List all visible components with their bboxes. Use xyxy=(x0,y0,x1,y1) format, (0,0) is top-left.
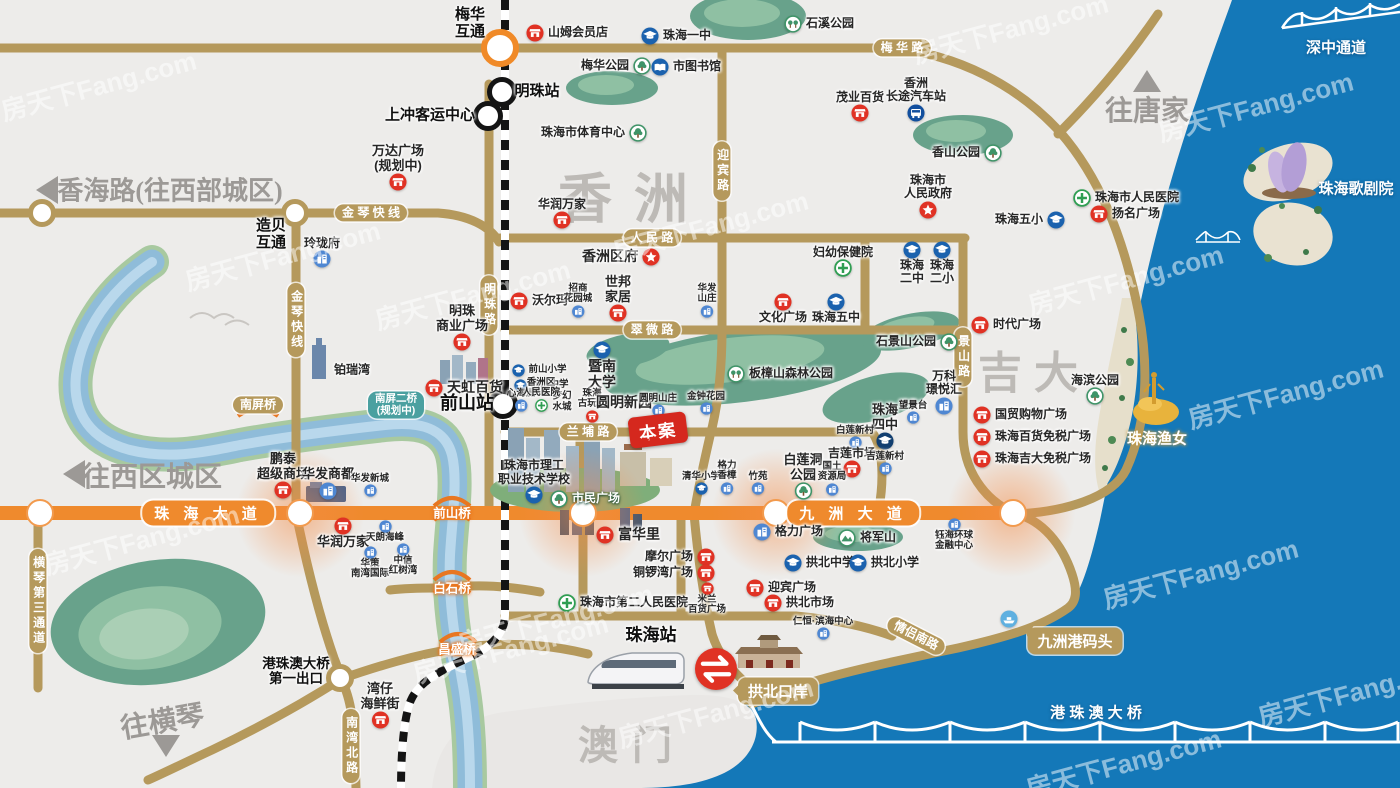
poi-label: 香洲 长途汽车站 xyxy=(886,77,946,104)
poi-label: 暨南 大学 xyxy=(588,359,616,390)
poi[interactable]: 前山小学 xyxy=(512,364,567,377)
station-label[interactable]: 珠海站 xyxy=(626,625,677,644)
park2-icon xyxy=(784,15,802,33)
poi[interactable]: 中信 红树湾 xyxy=(389,543,418,577)
poi[interactable]: 珠海五小 xyxy=(995,211,1065,229)
estate-icon xyxy=(935,397,953,415)
poi-label: 华发 山庄 xyxy=(697,284,716,305)
poi-label: 招商 花园城 xyxy=(564,284,593,305)
park-icon xyxy=(550,490,568,508)
poi[interactable]: 格力广场 xyxy=(753,523,823,541)
poi[interactable]: 格力 香樟 xyxy=(717,461,736,495)
shop-icon xyxy=(453,333,471,351)
poi[interactable]: 珠海市体育中心 xyxy=(541,124,647,142)
poi-label: 中信 红树湾 xyxy=(389,556,418,577)
poi-label: 珠海 四中 xyxy=(872,403,898,432)
poi-label: 竹苑 xyxy=(748,472,767,483)
road-label[interactable]: 南屏桥 xyxy=(233,396,283,413)
poi[interactable]: 华发新城 xyxy=(351,474,389,498)
poi-label: 市民广场 xyxy=(572,492,620,505)
poi[interactable]: 米兰 百货广场 xyxy=(688,582,726,616)
shop-icon xyxy=(510,292,528,310)
poi[interactable]: 望景台 xyxy=(899,401,928,425)
poi-label: 金钟花园 xyxy=(687,392,725,403)
poi[interactable]: 妇幼保健院 xyxy=(813,246,873,277)
poi-label: 富华里 xyxy=(618,527,660,543)
shop-icon xyxy=(609,304,627,322)
estate-icon xyxy=(700,305,713,318)
poi-label: 望景台 xyxy=(899,401,928,412)
poi[interactable]: 市图书馆 xyxy=(651,58,721,76)
planned-bridge-label: 南屏二桥 (规划中) xyxy=(368,391,424,418)
poi-label: 拱北中学 xyxy=(806,556,854,569)
poi[interactable]: 铜锣湾广场 xyxy=(633,564,715,582)
poi-label: 珠海市理工 职业技术学校 xyxy=(498,459,570,486)
sea-label: 港 珠 澳 大 桥 xyxy=(1050,702,1142,723)
poi[interactable]: 华策 南湾国际 xyxy=(351,546,389,580)
sea-label: 深中通道 xyxy=(1306,37,1366,58)
poi-label: 板樟山森林公园 xyxy=(749,367,833,380)
gold-callout[interactable]: 九洲港码头 xyxy=(1027,628,1122,655)
poi[interactable]: 华发 山庄 xyxy=(697,284,716,318)
shop-icon xyxy=(746,579,764,597)
poi-label: 拱北市场 xyxy=(786,596,834,609)
poi[interactable]: 珠海五中 xyxy=(812,293,860,324)
shop-icon xyxy=(697,564,715,582)
poi-label: 仁恒·滨海中心 xyxy=(793,617,853,628)
road-label[interactable]: 横琴第三通道 xyxy=(29,549,46,653)
poi[interactable]: 香山公园 xyxy=(932,144,1002,162)
estate-icon xyxy=(363,484,376,497)
poi[interactable]: 珠海市 人民政府 xyxy=(904,174,952,219)
poi-label: 梅华公园 xyxy=(581,59,629,72)
bridge-label: 昌盛桥 xyxy=(438,639,476,658)
poi-label: 市图书馆 xyxy=(673,60,721,73)
poi[interactable]: 市民广场 xyxy=(550,490,620,508)
poi[interactable]: 香洲区 人民医院 xyxy=(522,378,560,412)
poi[interactable]: 珠海吉大免税广场 xyxy=(973,450,1091,468)
hosp-icon xyxy=(1073,189,1091,207)
sea-label: 珠海歌剧院 xyxy=(1318,178,1393,199)
highway-label[interactable]: 珠 海 大 道 xyxy=(142,501,274,526)
shop-icon xyxy=(764,594,782,612)
poi[interactable]: 珠海百货免税广场 xyxy=(973,428,1091,446)
estate-icon xyxy=(878,462,891,475)
poi-label: 钰海环球 金融中心 xyxy=(935,531,973,552)
poi[interactable]: 万达广场 (规划中) xyxy=(372,144,424,191)
train xyxy=(588,653,684,689)
poi-label: 石景山公园 xyxy=(876,335,936,348)
poi-label: 珠海市第二人民医院 xyxy=(580,596,688,609)
poi[interactable]: 华发商都 xyxy=(302,467,354,500)
poi-label: 拱北小学 xyxy=(871,556,919,569)
borui-tower xyxy=(312,338,326,379)
estate-icon xyxy=(313,250,331,268)
poi[interactable]: 将军山 xyxy=(838,529,896,547)
poi[interactable]: 金钟花园 xyxy=(687,392,725,416)
school-icon xyxy=(694,482,707,495)
poi-label: 珠海吉大免税广场 xyxy=(995,452,1091,465)
estate-icon xyxy=(699,402,712,415)
school-icon xyxy=(1047,211,1065,229)
poi[interactable]: 招商 花园城 xyxy=(564,284,593,318)
school-icon xyxy=(641,27,659,45)
road-label[interactable]: 迎宾路 xyxy=(713,142,730,201)
poi-label: 华策 南湾国际 xyxy=(351,559,389,580)
poi[interactable]: 富华里 xyxy=(596,526,660,544)
poi-label: 万达广场 (规划中) xyxy=(372,144,424,173)
poi-label: 万科 璟悦汇 xyxy=(926,370,962,397)
estate-icon xyxy=(906,411,919,424)
estate-icon xyxy=(363,546,376,559)
direction-label: 往唐家 xyxy=(1105,89,1189,129)
poi[interactable]: 华润万家 xyxy=(538,198,586,229)
poi-label: 米兰 百货广场 xyxy=(688,595,726,616)
poi[interactable]: 文化广场 xyxy=(759,293,807,324)
station-label[interactable]: 造贝 互通 xyxy=(256,218,286,252)
estate-icon xyxy=(825,483,838,496)
poi-label: 迎宾广场 xyxy=(768,581,816,594)
poi[interactable]: 吉莲新村 xyxy=(866,452,904,476)
shop-icon xyxy=(774,293,792,311)
poi-label: 珠海市体育中心 xyxy=(541,126,625,139)
shop-icon xyxy=(1090,205,1108,223)
poi-label: 国贸购物广场 xyxy=(995,408,1067,421)
poi-label: 圆明山庄 xyxy=(639,394,677,405)
direction-arrow-icon xyxy=(1133,70,1161,92)
poi[interactable]: 石溪公园 xyxy=(784,15,854,33)
poi-label: 山姆会员店 xyxy=(548,26,608,39)
junction-circle xyxy=(26,499,54,527)
road-label[interactable]: 南湾北路 xyxy=(342,709,359,783)
poi-label: 格力 香樟 xyxy=(717,461,736,482)
poi[interactable]: 沃尔玛 xyxy=(510,292,568,310)
poi-label: 海滨公园 xyxy=(1071,374,1119,387)
shop-icon xyxy=(585,410,598,423)
poi-label: 珠海市 人民政府 xyxy=(904,174,952,201)
poi-label: 前山小学 xyxy=(529,365,567,376)
poi[interactable]: 珠海一中 xyxy=(641,27,711,45)
poi[interactable]: 拱北小学 xyxy=(849,554,919,572)
highway-label[interactable]: 九 洲 大 道 xyxy=(787,501,919,526)
poi-label: 珠海五小 xyxy=(995,213,1043,226)
park-icon xyxy=(940,333,958,351)
poi[interactable]: 香洲区府 xyxy=(582,248,660,266)
poi-label: 国土 资源局 xyxy=(818,462,847,483)
school-icon xyxy=(512,364,525,377)
station-label[interactable]: 明珠站 xyxy=(514,84,559,101)
school-icon xyxy=(784,554,802,572)
book-icon xyxy=(651,58,669,76)
poi-label: 珠海 二中 xyxy=(900,259,924,286)
estate-icon xyxy=(396,543,409,556)
shop-icon xyxy=(851,104,869,122)
poi-label: 香洲区府 xyxy=(582,249,638,265)
school-icon xyxy=(827,293,845,311)
shop-icon xyxy=(274,481,292,499)
school-icon xyxy=(593,341,611,359)
direction-arrow-icon xyxy=(63,460,85,488)
poi-label: 茂业百货 xyxy=(836,91,884,104)
junction-circle xyxy=(481,29,519,67)
poi[interactable]: 石景山公园 xyxy=(876,333,958,351)
poi[interactable]: 铂瑞湾 xyxy=(334,363,370,376)
poi-label: 妇幼保健院 xyxy=(813,246,873,259)
road-label[interactable]: 金琴快线 xyxy=(287,283,304,357)
poi-label: 沃尔玛 xyxy=(532,294,568,307)
junction-circle xyxy=(28,199,56,227)
estate-icon xyxy=(816,627,829,640)
junction-circle xyxy=(286,499,314,527)
poi[interactable]: 珠海 四中 xyxy=(872,403,898,450)
school2-icon xyxy=(876,432,894,450)
map-canvas[interactable]: 本案 房天下Fang.com房天下Fang.com房天下Fang.com房天下F… xyxy=(0,0,1400,788)
estate-icon xyxy=(319,482,337,500)
shop-icon xyxy=(371,711,389,729)
poi-label: 白莲洞 公园 xyxy=(783,453,822,482)
road-label[interactable]: 金 琴 快 线 xyxy=(335,204,407,221)
shop-icon xyxy=(553,211,571,229)
road-label[interactable]: 兰 埔 路 xyxy=(560,423,617,440)
poi-label: 香洲区 人民医院 xyxy=(522,378,560,399)
school-icon xyxy=(849,554,867,572)
poi[interactable]: 珠海 二中 xyxy=(900,241,924,286)
poi-label: 铜锣湾广场 xyxy=(633,566,693,579)
poi-label: 珠海市人民医院 xyxy=(1095,191,1179,204)
station-label[interactable]: 梅华 互通 xyxy=(455,7,485,41)
sea-label: 珠海渔女 xyxy=(1127,428,1187,449)
poi-label: 珠海百货免税广场 xyxy=(995,430,1091,443)
poi[interactable]: 海滨公园 xyxy=(1071,374,1119,405)
poi-label: 格力广场 xyxy=(775,525,823,538)
poi-label: 华发新城 xyxy=(351,474,389,485)
gov-icon xyxy=(642,248,660,266)
direction-arrow-icon xyxy=(152,735,180,757)
poi-label: 铂瑞湾 xyxy=(334,363,370,376)
gov-icon xyxy=(919,201,937,219)
shop-icon xyxy=(334,517,352,535)
direction-label: 往西区城区 xyxy=(82,455,222,495)
poi[interactable]: 板樟山森林公园 xyxy=(727,365,833,383)
poi-label: 香山公园 xyxy=(932,146,980,159)
shop-icon xyxy=(526,24,544,42)
poi-label: 珠海五中 xyxy=(812,311,860,324)
poi[interactable]: 湾仔 海鲜街 xyxy=(360,682,399,729)
poi-label: 文化广场 xyxy=(759,311,807,324)
poi[interactable]: 暨南 大学 xyxy=(588,341,616,390)
poi-label: 吉莲新村 xyxy=(866,452,904,463)
poi-label: 世邦 家居 xyxy=(605,275,631,304)
shop-icon xyxy=(389,173,407,191)
poi-label: 珠海一中 xyxy=(663,29,711,42)
estate-icon xyxy=(947,518,960,531)
poi[interactable]: 玲珑府 xyxy=(304,237,340,268)
bridge-label: 白石桥 xyxy=(433,578,471,597)
poi-label: 华发商都 xyxy=(302,467,354,482)
shop-icon xyxy=(596,526,614,544)
poi[interactable]: 珠海市第二人民医院 xyxy=(558,594,688,612)
poi[interactable]: 梅华公园 xyxy=(581,57,651,75)
road-label[interactable]: 梅 华 路 xyxy=(874,39,931,56)
border-crossing-icon[interactable] xyxy=(695,648,737,690)
park-icon xyxy=(629,124,647,142)
station-label[interactable]: 前山站 xyxy=(440,393,494,413)
poi[interactable]: 珠海 二小 xyxy=(930,241,954,286)
station-label[interactable]: 港珠澳大桥 第一出口 xyxy=(262,656,330,686)
mount-icon xyxy=(838,529,856,547)
poi-label: 玲珑府 xyxy=(304,237,340,250)
school-icon xyxy=(903,241,921,259)
estate-icon xyxy=(751,482,764,495)
station-circle xyxy=(473,101,503,131)
poi[interactable]: 拱北市场 xyxy=(764,594,834,612)
road-label[interactable]: 人 民 路 xyxy=(624,229,681,246)
shop-icon xyxy=(973,428,991,446)
poi[interactable]: 拱北中学 xyxy=(784,554,854,572)
poi[interactable] xyxy=(1000,610,1018,628)
poi[interactable]: 山姆会员店 xyxy=(526,24,608,42)
shop-icon xyxy=(973,406,991,424)
junction-circle xyxy=(999,499,1027,527)
shop-icon xyxy=(971,316,989,334)
gold-callout[interactable]: 拱北口岸 xyxy=(738,678,818,705)
poi-label: 明珠 商业广场 xyxy=(436,304,488,333)
park-icon xyxy=(1086,387,1104,405)
poi-label: 珠海 二小 xyxy=(930,259,954,286)
shop-icon xyxy=(973,450,991,468)
poi-label: 时代广场 xyxy=(993,318,1041,331)
park-icon xyxy=(633,57,651,75)
poi[interactable]: 茂业百货 xyxy=(836,91,884,122)
park-icon xyxy=(794,482,812,500)
poi-label: 清华小学 xyxy=(682,472,720,483)
poi[interactable]: 时代广场 xyxy=(971,316,1041,334)
bridge-label: 前山桥 xyxy=(433,503,471,522)
school-icon xyxy=(933,241,951,259)
poi[interactable]: 扬名广场 xyxy=(1090,205,1160,223)
poi[interactable]: 国贸购物广场 xyxy=(973,406,1067,424)
shop-icon xyxy=(700,582,713,595)
poi[interactable]: 香洲 长途汽车站 xyxy=(886,77,946,122)
estate-icon xyxy=(378,520,391,533)
hosp-icon xyxy=(534,399,547,412)
direction-label: 香海路(往西部城区) xyxy=(57,171,282,208)
school-icon xyxy=(525,486,543,504)
poi[interactable]: 钰海环球 金融中心 xyxy=(935,518,973,552)
poi[interactable]: 天朗海峰 xyxy=(366,520,404,544)
bus-icon xyxy=(907,104,925,122)
hosp-icon xyxy=(834,259,852,277)
poi-label: 白莲新村 xyxy=(836,426,874,437)
poi[interactable]: 白莲洞 公园 xyxy=(783,453,822,500)
poi[interactable]: 清华小学 xyxy=(682,472,720,496)
road-label[interactable]: 翠 微 路 xyxy=(624,321,681,338)
poi[interactable]: 明珠 商业广场 xyxy=(436,304,488,351)
park-icon xyxy=(984,144,1002,162)
district-label: 澳门 xyxy=(578,713,686,771)
estate-icon xyxy=(571,305,584,318)
estate-icon xyxy=(720,482,733,495)
poi-label: 华润万家 xyxy=(538,198,586,211)
estate-icon xyxy=(753,523,771,541)
poi[interactable]: 世邦 家居 xyxy=(605,275,631,322)
ferry-icon xyxy=(1000,610,1018,628)
hosp-icon xyxy=(558,594,576,612)
poi-label: 石溪公园 xyxy=(806,17,854,30)
poi[interactable]: 仁恒·滨海中心 xyxy=(793,617,853,641)
poi-label: 湾仔 海鲜街 xyxy=(360,682,399,711)
station-label[interactable]: 上冲客运中心 xyxy=(385,108,475,125)
poi[interactable]: 国土 资源局 xyxy=(818,462,847,496)
poi[interactable]: 竹苑 xyxy=(748,472,767,496)
poi-label: 扬名广场 xyxy=(1112,207,1160,220)
poi-label: 摩尔广场 xyxy=(645,550,693,563)
poi-label: 将军山 xyxy=(860,531,896,544)
poi[interactable]: 万科 璟悦汇 xyxy=(926,370,962,415)
park2-icon xyxy=(727,365,745,383)
